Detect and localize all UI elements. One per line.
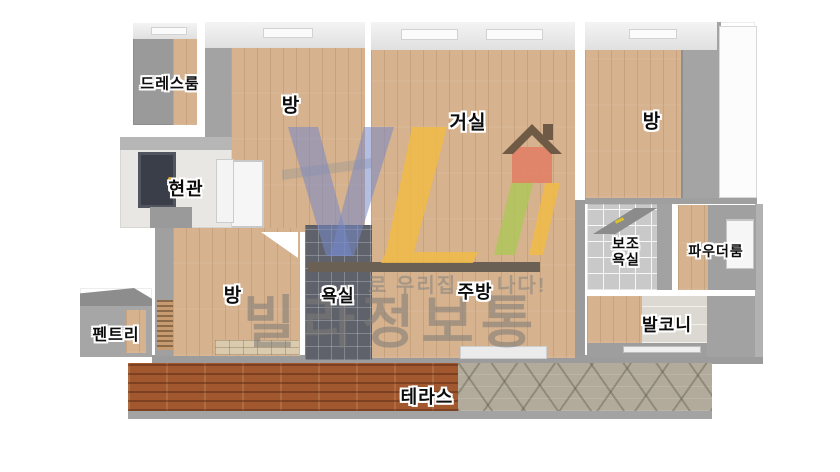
dressroom-ceiling	[133, 23, 197, 39]
sub-bathroom-wall	[657, 204, 672, 290]
room-label-bottom-left: 방	[224, 285, 242, 306]
room-label-dressroom: 드레스룸	[140, 77, 199, 94]
watermark-brand-text: 빌라정보통	[243, 295, 540, 352]
room-pantry	[80, 288, 152, 357]
room-label-living: 거실	[450, 112, 487, 133]
mid-right-wall	[575, 200, 585, 357]
entrance-top-wall	[120, 137, 232, 150]
floor-plan-canvas: 로 우리집 나다! 빌라정보통 드레스룸 방 거실 방 현관 방 욕실 주방 보…	[0, 0, 840, 472]
entrance-lower-wall	[150, 207, 192, 228]
room-top-left-ceiling	[205, 22, 365, 48]
room-label-entrance: 현관	[168, 179, 203, 199]
room-label-top-left: 방	[282, 95, 300, 116]
kitchen-counter-bar	[308, 262, 540, 272]
ac-vent-icon	[263, 28, 313, 38]
room-label-pantry: 펜트리	[92, 327, 139, 345]
shower-glass	[593, 208, 657, 234]
room-label-balcony: 발코니	[642, 315, 692, 334]
terrace-stone-floor	[458, 363, 712, 411]
room-top-right-white-panel	[719, 26, 757, 198]
right-outer-wall	[755, 204, 763, 357]
room-label-top-right: 방	[643, 111, 661, 132]
room-label-powder: 파우더룸	[688, 244, 744, 260]
terrace-base-wall	[128, 411, 712, 419]
room-dressroom	[133, 23, 197, 125]
pantry-roof-wedge	[80, 288, 152, 306]
room-top-right-ceiling	[585, 22, 717, 50]
ac-vent-icon	[401, 29, 458, 40]
room-label-terrace: 테라스	[401, 387, 454, 407]
room-label-bathroom: 욕실	[321, 286, 354, 305]
shoe-cabinet	[216, 159, 234, 223]
ac-vent-icon	[629, 29, 677, 39]
sub-bathroom-line2: 욕실	[612, 251, 640, 267]
balcony-wood-floor	[587, 296, 642, 343]
balcony-right-wall	[707, 296, 755, 357]
living-room-ceiling	[371, 22, 575, 50]
room-label-sub-bathroom: 보조욕실	[612, 236, 640, 267]
room-top-right	[585, 22, 755, 198]
ac-vent-icon	[486, 29, 543, 40]
window-louver	[157, 300, 173, 350]
sub-bathroom-line1: 보조	[612, 235, 640, 251]
balcony-vent-icon	[623, 346, 701, 353]
ac-vent-icon	[151, 27, 187, 35]
room-label-kitchen: 주방	[457, 282, 492, 302]
